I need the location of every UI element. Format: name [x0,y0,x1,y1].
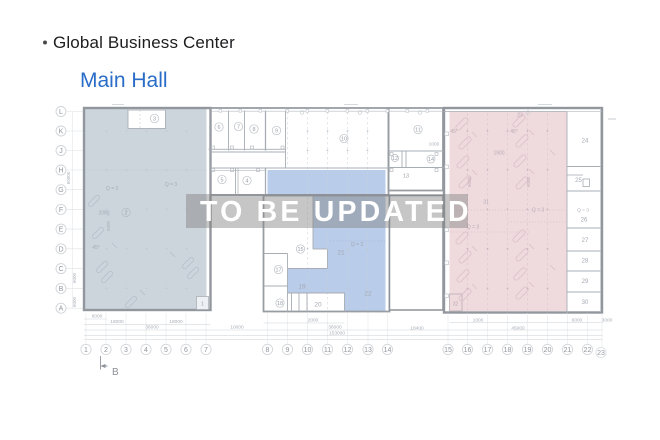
svg-text:26: 26 [581,218,588,224]
svg-text:1000: 1000 [473,317,484,323]
svg-text:5: 5 [164,347,168,354]
svg-text:13: 13 [403,174,409,180]
svg-text:18: 18 [504,347,512,354]
svg-text:8: 8 [252,127,255,133]
svg-text:18000: 18000 [169,319,183,325]
svg-text:16: 16 [464,347,472,354]
svg-text:32: 32 [453,302,459,308]
svg-text:1000: 1000 [429,142,440,148]
svg-text:5: 5 [220,178,223,184]
svg-text:11: 11 [324,347,331,354]
svg-text:45°: 45° [92,245,100,251]
svg-text:K: K [59,129,64,136]
svg-text:17: 17 [275,268,281,274]
svg-text:3: 3 [153,117,156,123]
svg-text:24: 24 [582,139,589,145]
svg-text:TO BE UPDATED: TO BE UPDATED [200,196,472,228]
svg-text:1: 1 [201,302,204,308]
svg-text:10: 10 [304,347,312,354]
svg-text:6: 6 [184,347,188,354]
svg-text:Main Hall: Main Hall [80,69,168,92]
svg-text:C: C [58,266,63,273]
svg-text:28: 28 [582,259,589,265]
svg-text:10000: 10000 [230,325,244,331]
svg-text:19: 19 [298,284,306,291]
svg-text:Global Business Center: Global Business Center [53,33,235,52]
svg-text:F: F [59,207,63,214]
svg-text:3: 3 [124,347,128,354]
svg-text:10: 10 [341,137,347,143]
svg-text:E: E [59,227,64,234]
svg-text:15: 15 [297,247,303,253]
svg-text:23: 23 [517,113,523,119]
svg-text:9: 9 [275,129,278,135]
svg-text:6: 6 [217,125,220,131]
svg-text:B: B [112,367,119,378]
svg-text:27: 27 [582,238,589,244]
svg-text:Q = 3: Q = 3 [165,182,178,188]
svg-text:H: H [58,168,63,175]
svg-text:23: 23 [597,350,605,357]
svg-text:13: 13 [364,347,372,354]
svg-text:19: 19 [524,347,532,354]
svg-text:20: 20 [314,302,322,309]
svg-text:B: B [59,286,64,293]
svg-text:9: 9 [286,347,290,354]
svg-text:1900: 1900 [493,151,504,157]
svg-text:21: 21 [564,347,572,354]
svg-text:G: G [58,187,63,194]
svg-text:4: 4 [144,347,148,354]
svg-text:18000: 18000 [110,319,124,325]
svg-text:6000: 6000 [526,176,531,187]
svg-text:12: 12 [344,347,352,354]
svg-text:45°: 45° [450,129,458,135]
svg-text:A: A [59,306,64,313]
svg-text:8: 8 [266,347,270,354]
svg-text:18400: 18400 [410,326,424,332]
svg-text:30: 30 [582,300,589,306]
svg-text:22: 22 [364,291,372,298]
svg-text:1: 1 [84,347,88,354]
svg-text:18: 18 [277,301,283,307]
svg-text:L: L [59,109,63,116]
svg-text:6000: 6000 [572,317,583,323]
svg-text:5000: 5000 [106,220,111,231]
svg-text:7: 7 [204,347,208,354]
svg-text:29: 29 [582,279,589,285]
svg-text:153000: 153000 [329,331,345,337]
svg-text:D: D [58,246,63,253]
svg-text:12: 12 [392,156,398,162]
svg-text:17: 17 [484,347,492,354]
svg-text:36000: 36000 [145,325,159,331]
svg-text:Q = 3: Q = 3 [532,208,545,214]
svg-text:15: 15 [444,347,452,354]
svg-text:Q = 3: Q = 3 [577,208,589,214]
svg-text:6000: 6000 [467,176,472,187]
svg-text:7: 7 [237,125,240,131]
svg-text:6000: 6000 [92,314,103,320]
svg-text:25: 25 [575,178,582,184]
svg-text:4: 4 [245,179,248,185]
svg-text:21: 21 [337,250,345,257]
svg-text:11: 11 [415,128,421,134]
svg-text:2000: 2000 [308,318,319,324]
svg-text:14: 14 [428,157,434,163]
svg-text:J: J [59,148,63,155]
svg-text:60000: 60000 [66,171,71,184]
svg-text:2: 2 [124,211,127,217]
svg-text:31: 31 [483,200,489,206]
svg-text:14: 14 [384,347,392,354]
svg-text:22: 22 [584,347,592,354]
svg-text:20: 20 [544,347,552,354]
svg-text:Q = 3: Q = 3 [351,242,364,248]
svg-text:36000: 36000 [328,325,342,331]
svg-text:45°: 45° [510,129,518,135]
svg-text:Q = 3: Q = 3 [106,186,119,192]
svg-text:45000: 45000 [511,326,525,332]
svg-text:3000: 3000 [602,317,613,323]
svg-text:2: 2 [104,347,108,354]
